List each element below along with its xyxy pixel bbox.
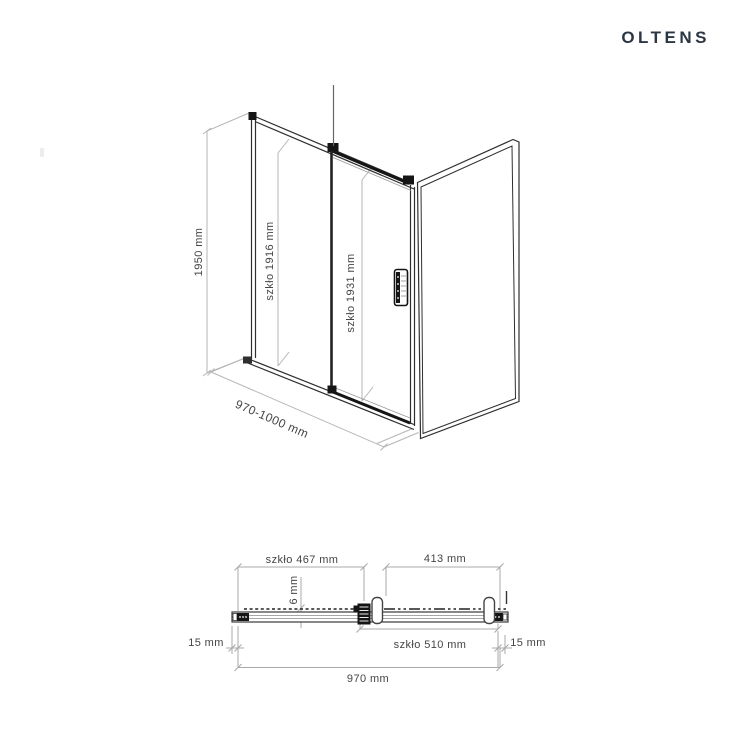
left-wall-profile-icon (233, 614, 237, 621)
dim-opening-width-label: 413 mm (424, 553, 466, 565)
perspective-dimension-lines (203, 113, 419, 451)
bottom-left-cap-icon (243, 357, 252, 364)
door-handle-icon (395, 270, 408, 306)
dim-right-adjustment-label: 15 mm (510, 637, 546, 649)
dim-glass-thickness-label: 6 mm (288, 575, 300, 604)
dim-fixed-glass-width-label: szkło 467 mm (266, 554, 339, 566)
door-guide-foot-icon (328, 386, 337, 394)
dim-door-glass-height-label: szkło 1931 mm (345, 253, 357, 332)
roller-bracket-right-icon (484, 598, 495, 624)
side-wall-panel (418, 140, 520, 439)
dim-total-width-label: 970 mm (347, 673, 389, 685)
product-dimension-sheet: OLTENS 1950 mm szkło 1916 mm szkło 1931 … (0, 0, 750, 750)
dim-left-adjustment-label: 15 mm (188, 637, 224, 649)
technical-drawing (0, 0, 750, 750)
brand-logo: OLTENS (621, 28, 710, 48)
track-profile-section (232, 591, 508, 625)
roller-bracket-left-icon (372, 598, 383, 624)
dim-total-height-label: 1950 mm (193, 228, 205, 277)
dim-door-glass-width-label: szkło 510 mm (394, 639, 467, 651)
dim-fixed-glass-height-label: szkło 1916 mm (264, 221, 276, 300)
top-left-cap-icon (249, 112, 257, 120)
